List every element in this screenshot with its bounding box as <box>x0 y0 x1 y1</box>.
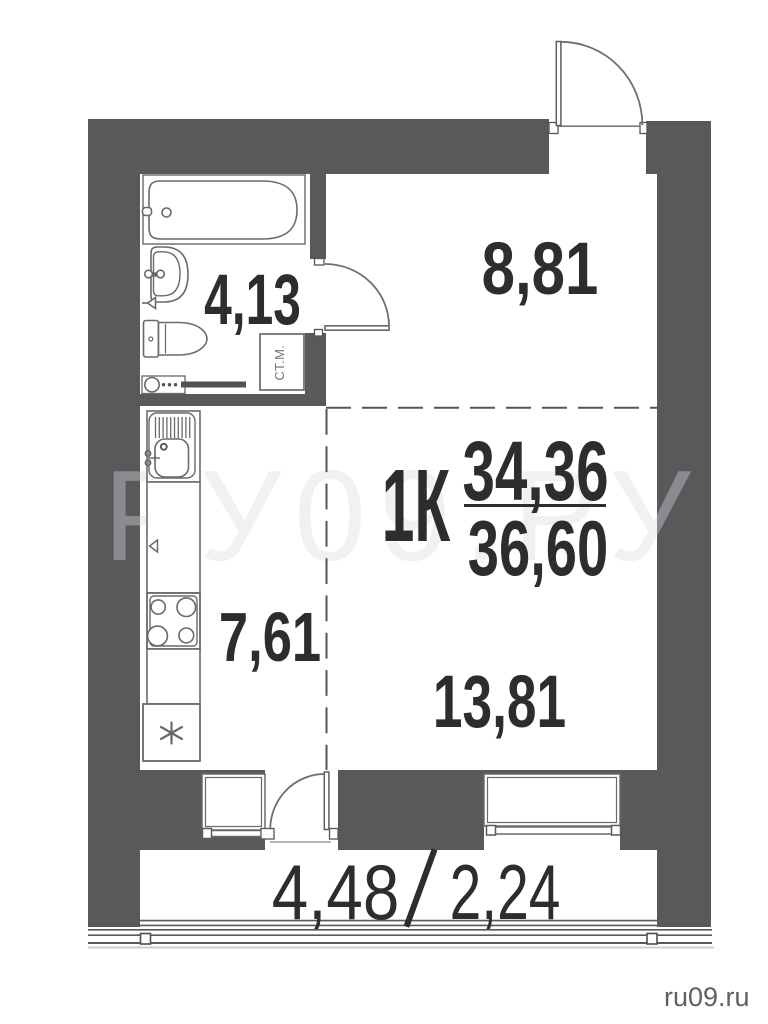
svg-text:4,48: 4,48 <box>272 850 400 937</box>
svg-text:13,81: 13,81 <box>433 660 566 743</box>
svg-text:36,60: 36,60 <box>468 505 609 592</box>
svg-text:7,61: 7,61 <box>219 599 321 677</box>
svg-text:ru09.ru: ru09.ru <box>664 982 750 1012</box>
svg-text:2,24: 2,24 <box>450 849 561 936</box>
svg-text:4,13: 4,13 <box>204 260 301 339</box>
svg-text:1К: 1К <box>382 448 451 563</box>
svg-text:8,81: 8,81 <box>482 228 599 310</box>
svg-text:СТ.М.: СТ.М. <box>272 344 287 380</box>
